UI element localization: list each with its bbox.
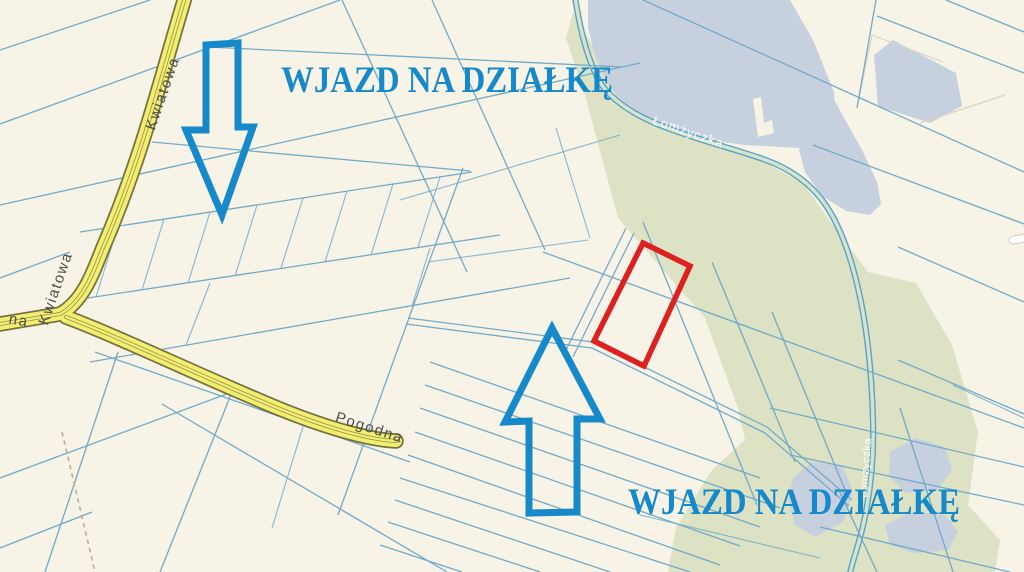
entrance-label-top: WJAZD NA DZIAŁKĘ [281,60,613,101]
map-canvas: Kwiatowa Kwiatowa Pogodna na Łomżyczka Ł… [0,0,1024,572]
entrance-label-bottom: WJAZD NA DZIAŁKĘ [628,482,960,523]
street-label-left-partial: na [8,310,30,330]
map-screenshot: Kwiatowa Kwiatowa Pogodna na Łomżyczka Ł… [0,0,1024,572]
white-road-stub [1013,237,1024,240]
